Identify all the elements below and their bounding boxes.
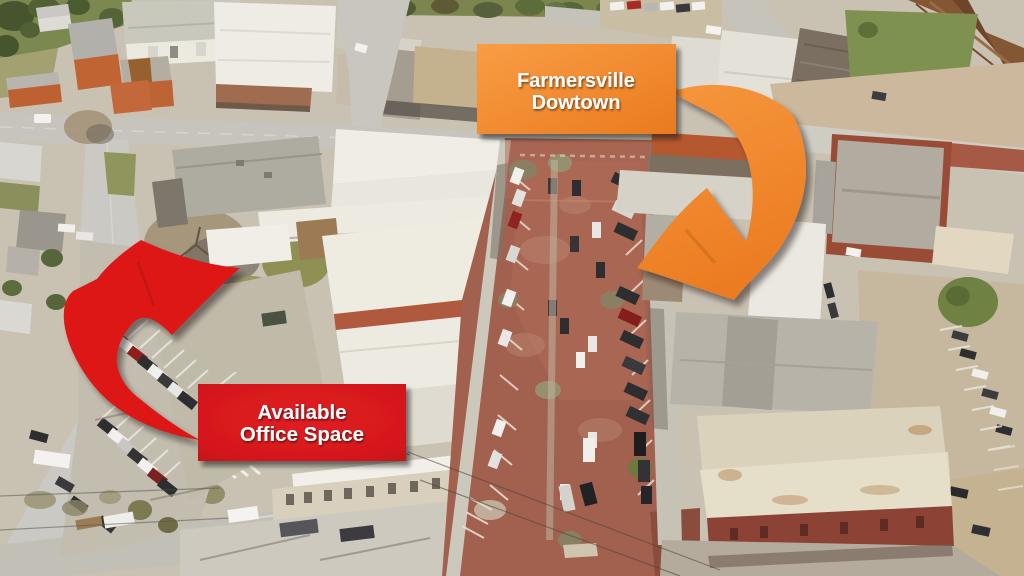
svg-text:Dowtown: Dowtown xyxy=(532,92,621,114)
svg-text:Farmersville: Farmersville xyxy=(517,70,635,92)
svg-text:Office Space: Office Space xyxy=(240,423,364,446)
svg-text:Available: Available xyxy=(257,401,346,424)
